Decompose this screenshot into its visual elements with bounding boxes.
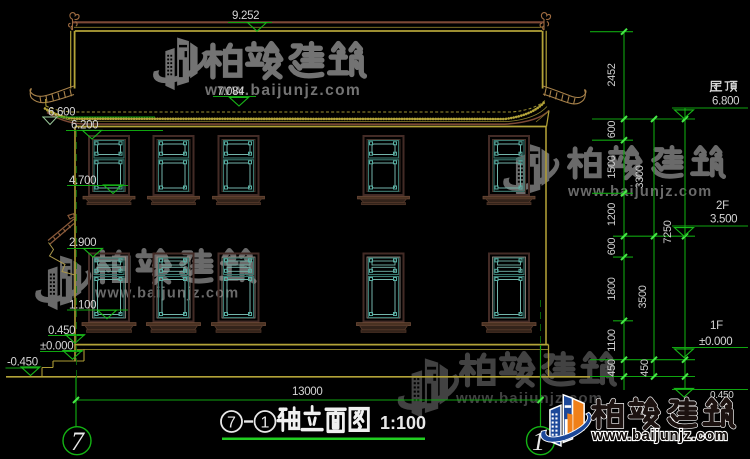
svg-text:±0.000: ±0.000 bbox=[40, 341, 73, 353]
svg-text:1800: 1800 bbox=[606, 277, 618, 300]
svg-text:1F: 1F bbox=[710, 320, 723, 332]
svg-text:1100: 1100 bbox=[606, 329, 618, 352]
svg-text:7.084: 7.084 bbox=[217, 86, 245, 98]
svg-text:1:100: 1:100 bbox=[380, 413, 426, 433]
svg-text:0.450: 0.450 bbox=[48, 325, 75, 337]
svg-text:600: 600 bbox=[606, 121, 618, 139]
svg-text:1200: 1200 bbox=[606, 203, 618, 226]
svg-text:-0.450: -0.450 bbox=[7, 357, 38, 369]
svg-text:6.600: 6.600 bbox=[48, 107, 75, 119]
svg-text:7250: 7250 bbox=[662, 220, 674, 243]
svg-text:www.baijunjz.com: www.baijunjz.com bbox=[591, 428, 728, 444]
svg-text:1.100: 1.100 bbox=[69, 300, 96, 312]
svg-text:450: 450 bbox=[606, 359, 618, 377]
svg-text:±0.000: ±0.000 bbox=[699, 336, 732, 348]
svg-text:6.800: 6.800 bbox=[712, 96, 739, 108]
svg-text:1: 1 bbox=[261, 415, 270, 432]
svg-text:450: 450 bbox=[639, 359, 651, 377]
svg-text:3300: 3300 bbox=[634, 165, 646, 188]
svg-text:3.500: 3.500 bbox=[710, 214, 737, 226]
svg-text:6.200: 6.200 bbox=[71, 120, 98, 132]
svg-text:7: 7 bbox=[227, 415, 236, 432]
svg-text:13000: 13000 bbox=[292, 386, 322, 398]
svg-text:2F: 2F bbox=[716, 200, 729, 212]
svg-text:7: 7 bbox=[71, 427, 85, 456]
svg-text:1500: 1500 bbox=[606, 155, 618, 178]
svg-text:600: 600 bbox=[606, 238, 618, 256]
svg-text:9.252: 9.252 bbox=[232, 10, 259, 22]
svg-text:3500: 3500 bbox=[637, 285, 649, 308]
svg-text:2452: 2452 bbox=[606, 63, 618, 86]
svg-text:4.700: 4.700 bbox=[69, 175, 96, 187]
svg-text:2.900: 2.900 bbox=[69, 237, 96, 249]
